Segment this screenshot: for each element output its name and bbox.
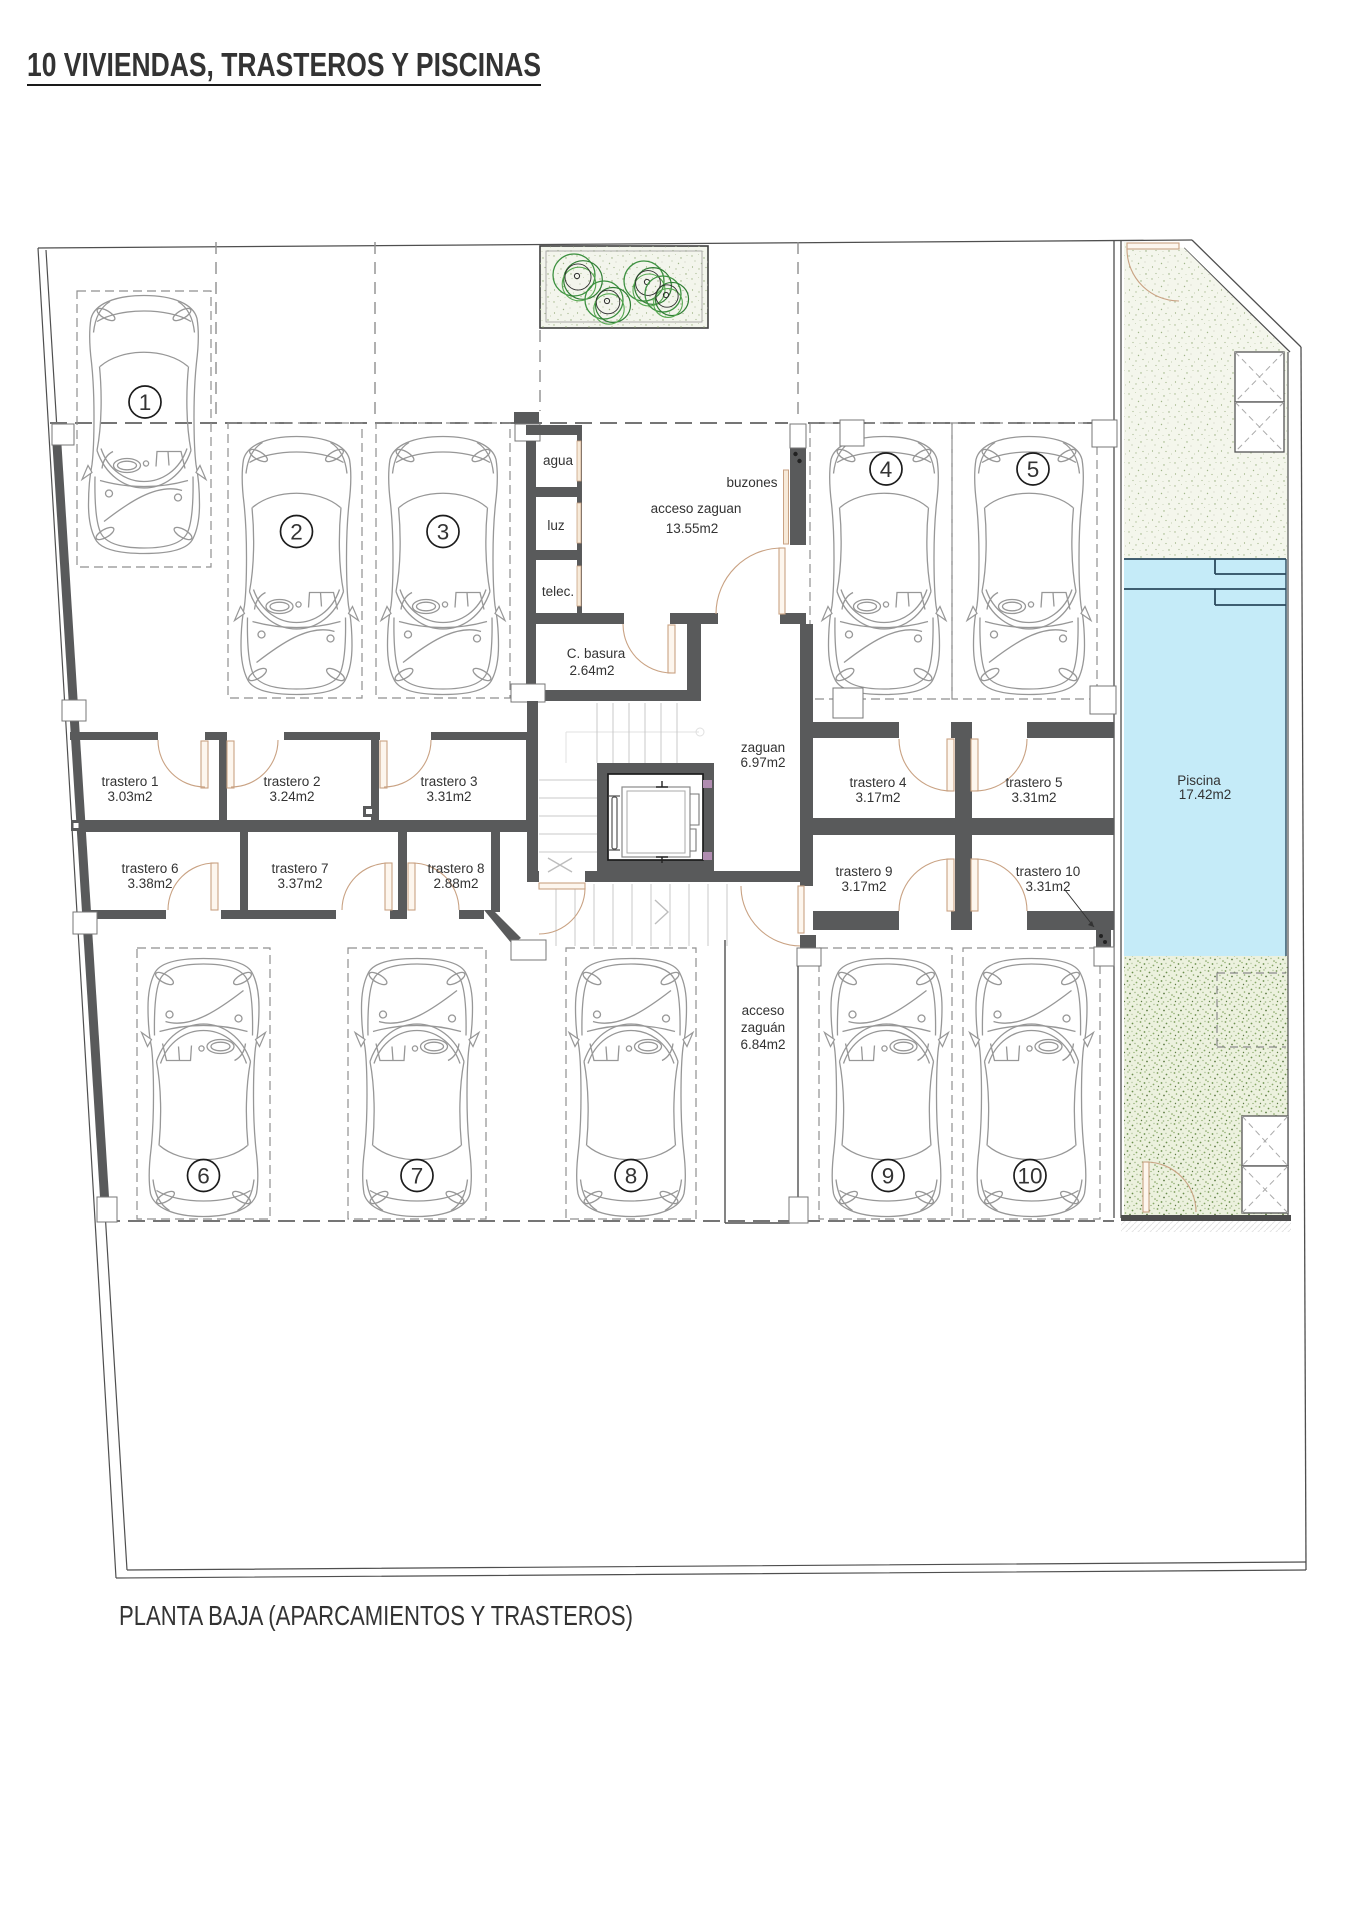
svg-text:13.55m2: 13.55m2 <box>666 521 719 536</box>
svg-text:trastero 2: trastero 2 <box>263 774 320 789</box>
svg-text:6: 6 <box>197 1164 210 1189</box>
svg-text:2.88m2: 2.88m2 <box>433 876 478 891</box>
svg-text:zaguán: zaguán <box>741 1020 785 1035</box>
svg-text:2: 2 <box>290 520 303 545</box>
svg-text:8: 8 <box>625 1164 638 1189</box>
svg-text:trastero 7: trastero 7 <box>271 861 328 876</box>
svg-text:17.42m2: 17.42m2 <box>1179 787 1232 802</box>
svg-text:3.24m2: 3.24m2 <box>269 789 314 804</box>
svg-text:3.31m2: 3.31m2 <box>1011 790 1056 805</box>
svg-text:3: 3 <box>437 520 450 545</box>
svg-text:telec.: telec. <box>542 584 574 599</box>
svg-text:agua: agua <box>543 453 574 468</box>
svg-text:3.31m2: 3.31m2 <box>426 789 471 804</box>
svg-text:9: 9 <box>882 1164 895 1189</box>
svg-text:buzones: buzones <box>726 475 777 490</box>
svg-text:trastero 10: trastero 10 <box>1016 864 1081 879</box>
svg-text:C. basura: C. basura <box>567 646 626 661</box>
svg-text:3.17m2: 3.17m2 <box>841 879 886 894</box>
svg-text:acceso: acceso <box>742 1003 785 1018</box>
svg-text:6.97m2: 6.97m2 <box>740 755 785 770</box>
svg-text:trastero 4: trastero 4 <box>849 775 907 790</box>
svg-text:10 VIVIENDAS, TRASTEROS Y PISC: 10 VIVIENDAS, TRASTEROS Y PISCINAS <box>27 46 541 83</box>
svg-text:1: 1 <box>139 390 152 415</box>
svg-text:10: 10 <box>1017 1164 1042 1189</box>
svg-text:3.31m2: 3.31m2 <box>1025 879 1070 894</box>
svg-text:zaguan: zaguan <box>741 740 785 755</box>
svg-text:3.37m2: 3.37m2 <box>277 876 322 891</box>
svg-text:trastero 9: trastero 9 <box>835 864 892 879</box>
svg-text:Piscina: Piscina <box>1177 773 1221 788</box>
svg-text:trastero 8: trastero 8 <box>427 861 484 876</box>
svg-text:trastero 1: trastero 1 <box>101 774 158 789</box>
svg-text:luz: luz <box>547 518 565 533</box>
svg-text:PLANTA BAJA (APARCAMIENTOS Y T: PLANTA BAJA (APARCAMIENTOS Y TRASTEROS) <box>119 1600 633 1631</box>
svg-text:7: 7 <box>411 1164 424 1189</box>
svg-text:4: 4 <box>880 457 893 482</box>
svg-text:trastero 3: trastero 3 <box>420 774 477 789</box>
svg-text:trastero 6: trastero 6 <box>121 861 178 876</box>
svg-text:3.38m2: 3.38m2 <box>127 876 172 891</box>
svg-text:acceso zaguan: acceso zaguan <box>651 501 742 516</box>
svg-text:3.03m2: 3.03m2 <box>107 789 152 804</box>
svg-text:3.17m2: 3.17m2 <box>855 790 900 805</box>
svg-text:6.84m2: 6.84m2 <box>740 1037 785 1052</box>
svg-text:2.64m2: 2.64m2 <box>569 663 614 678</box>
svg-text:trastero 5: trastero 5 <box>1005 775 1062 790</box>
svg-text:5: 5 <box>1027 457 1040 482</box>
